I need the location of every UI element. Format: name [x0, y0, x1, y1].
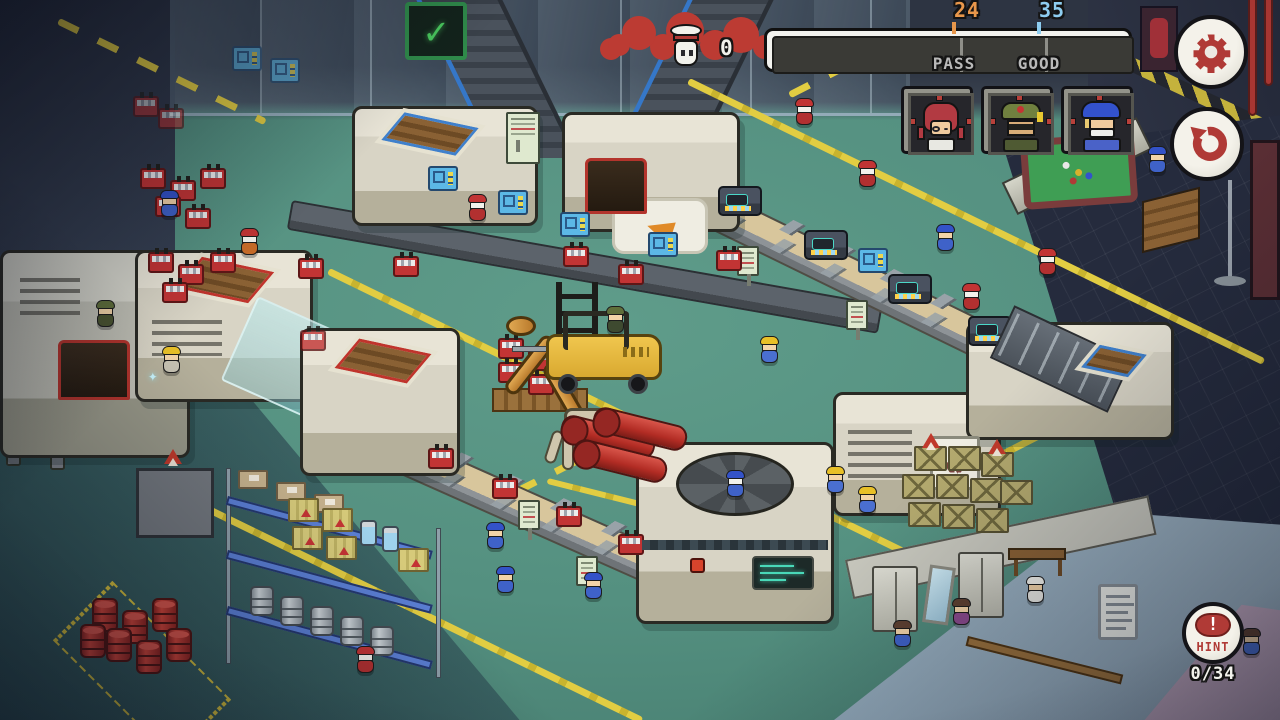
bomb-character [858, 160, 877, 187]
bomb-crate [200, 168, 226, 189]
forklift-driver [606, 306, 625, 333]
bomb-crate [618, 534, 644, 555]
bomb-character [795, 98, 814, 125]
welder [162, 346, 181, 373]
bomb-crate [162, 282, 188, 303]
forklift-body [546, 334, 662, 380]
wood-crate [976, 508, 1009, 533]
red-smoke-cloud [608, 34, 630, 56]
wall-poster [1140, 6, 1178, 72]
billiard-ball [1085, 172, 1092, 179]
metal-barrel [280, 596, 304, 626]
portrait-inspector-red-hair[interactable] [901, 86, 973, 154]
crate-with-arrow [398, 548, 429, 572]
shelf-post [436, 528, 441, 678]
glasses [932, 126, 940, 132]
doctor [1026, 576, 1045, 603]
worker-blue [160, 190, 179, 217]
hint-button[interactable]: HINT [1182, 602, 1244, 664]
gear-icon [1190, 31, 1232, 73]
undo-arrow-icon [1185, 122, 1229, 166]
game-viewport: ✓ [0, 0, 1280, 720]
hint-label: HINT [1186, 640, 1240, 654]
coat-stand [1228, 180, 1232, 280]
undo-button[interactable] [1170, 107, 1244, 181]
settings-button[interactable] [1174, 15, 1248, 89]
portrait-worker-masked[interactable] [1061, 86, 1133, 154]
machine-screen [752, 556, 814, 590]
blue-jacket [1083, 138, 1121, 152]
blue-crate [498, 190, 528, 215]
conveyor-sign [518, 500, 540, 530]
bomb-crate [140, 168, 166, 189]
left-dark-wall [0, 0, 175, 265]
inspector-blue [584, 572, 603, 599]
conveyor-sign [846, 300, 868, 330]
crate-with-arrow [322, 508, 353, 532]
wood-crate [948, 446, 981, 471]
bomb-crate [393, 256, 419, 277]
masked-inspector [726, 470, 745, 497]
blue-crate [560, 212, 590, 237]
bomb-crate [556, 506, 582, 527]
inspector-blue [486, 522, 505, 549]
hardhat-worker [858, 486, 877, 513]
red-button [690, 558, 705, 573]
red-barrel [136, 640, 162, 674]
red-barrel [166, 628, 192, 662]
warning-triangle [922, 424, 940, 448]
insignia [1037, 112, 1043, 122]
weld-spark: ✦ [148, 366, 158, 385]
bomb-crate [185, 208, 211, 229]
inspector-blue [1148, 146, 1167, 173]
bomb-crate [133, 96, 159, 117]
bomb-crate [716, 250, 742, 271]
bomb-crate [298, 258, 324, 279]
machine-vents [20, 278, 80, 318]
glass-canister [360, 520, 377, 546]
red-barrel [80, 624, 106, 658]
red-barrel [152, 598, 178, 632]
white-mask [1089, 128, 1115, 138]
scanner-unit [804, 230, 848, 260]
portrait-officer-green-cap[interactable] [981, 86, 1053, 154]
civilian [893, 620, 912, 647]
wood-crate [942, 504, 975, 529]
machine-vents [848, 430, 912, 480]
machine-window-band [642, 540, 828, 550]
scanner-unit [718, 186, 762, 216]
metal-barrel [340, 616, 364, 646]
bomb-crate [563, 246, 589, 267]
fail-counter: 0 [720, 36, 734, 60]
red-pipe [1248, 0, 1257, 116]
hair-tail [957, 126, 965, 140]
forklift-wheel [628, 374, 648, 394]
metal-barrel [310, 606, 334, 636]
overhead-sign [506, 112, 540, 164]
billiard-ball [1075, 169, 1082, 176]
bomb-crate [158, 108, 184, 129]
bomb-character [1038, 248, 1057, 275]
military-jacket [1003, 138, 1039, 152]
hair-tail [917, 126, 925, 140]
billiard-ball [1062, 162, 1069, 169]
bomb-character [468, 194, 487, 221]
bomb-character [356, 646, 375, 673]
wood-crate [902, 474, 935, 499]
bomb-crate [148, 252, 174, 273]
white-collar [927, 138, 955, 152]
bomb-crate [492, 478, 518, 499]
hint-progress: 0/34 [1176, 664, 1250, 684]
metal-barrel [250, 586, 274, 616]
red-frame-machine [1250, 140, 1280, 300]
warning-triangle [164, 440, 182, 464]
blue-crate [858, 248, 888, 273]
glass-canister [382, 526, 399, 552]
military-guard [96, 300, 115, 327]
checklist-board [1098, 584, 1138, 640]
red-star [1017, 106, 1024, 113]
bomb-crate [210, 252, 236, 273]
hardhat-worker [760, 336, 779, 363]
red-pipe [1264, 0, 1273, 86]
inspector-blue [936, 224, 955, 251]
dark-visor [1009, 124, 1033, 130]
crate-with-arrow [326, 536, 357, 560]
hardhat-worker [826, 466, 845, 493]
billiard-ball [1069, 177, 1076, 184]
cardboard-box [238, 470, 268, 489]
table [1008, 548, 1066, 560]
bomb-crate [428, 448, 454, 469]
approved-check-sign: ✓ [405, 2, 467, 60]
crate-with-arrow [292, 526, 323, 550]
red-barrel [106, 628, 132, 662]
warning-triangle [988, 430, 1006, 454]
civilian [1242, 628, 1261, 655]
inspector-blue [496, 566, 515, 593]
wood-crate [936, 474, 969, 499]
machine-doorway [58, 340, 130, 400]
blue-cap [1081, 101, 1121, 119]
crate-with-arrow [288, 498, 319, 522]
quota-progress-bar: 24 PASS 35 GOOD [764, 24, 1132, 74]
blue-crate [648, 232, 678, 257]
bomb-character [962, 283, 981, 310]
bomb-character [240, 228, 259, 255]
skull-chef-icon [668, 24, 706, 76]
wood-crate [1000, 480, 1033, 505]
alert-eye-icon [1195, 613, 1231, 637]
wood-crate [970, 478, 1003, 503]
civilian [952, 598, 971, 625]
forklift [528, 282, 678, 402]
bomb-crate [300, 330, 326, 351]
scanner-unit [888, 274, 932, 304]
gray-crate-stack [136, 468, 214, 538]
machine-doorway [585, 158, 647, 214]
wood-crate [908, 502, 941, 527]
forklift-wheel [558, 374, 578, 394]
blue-crate [232, 46, 262, 71]
blue-crate [428, 166, 458, 191]
blue-crate [270, 58, 300, 83]
